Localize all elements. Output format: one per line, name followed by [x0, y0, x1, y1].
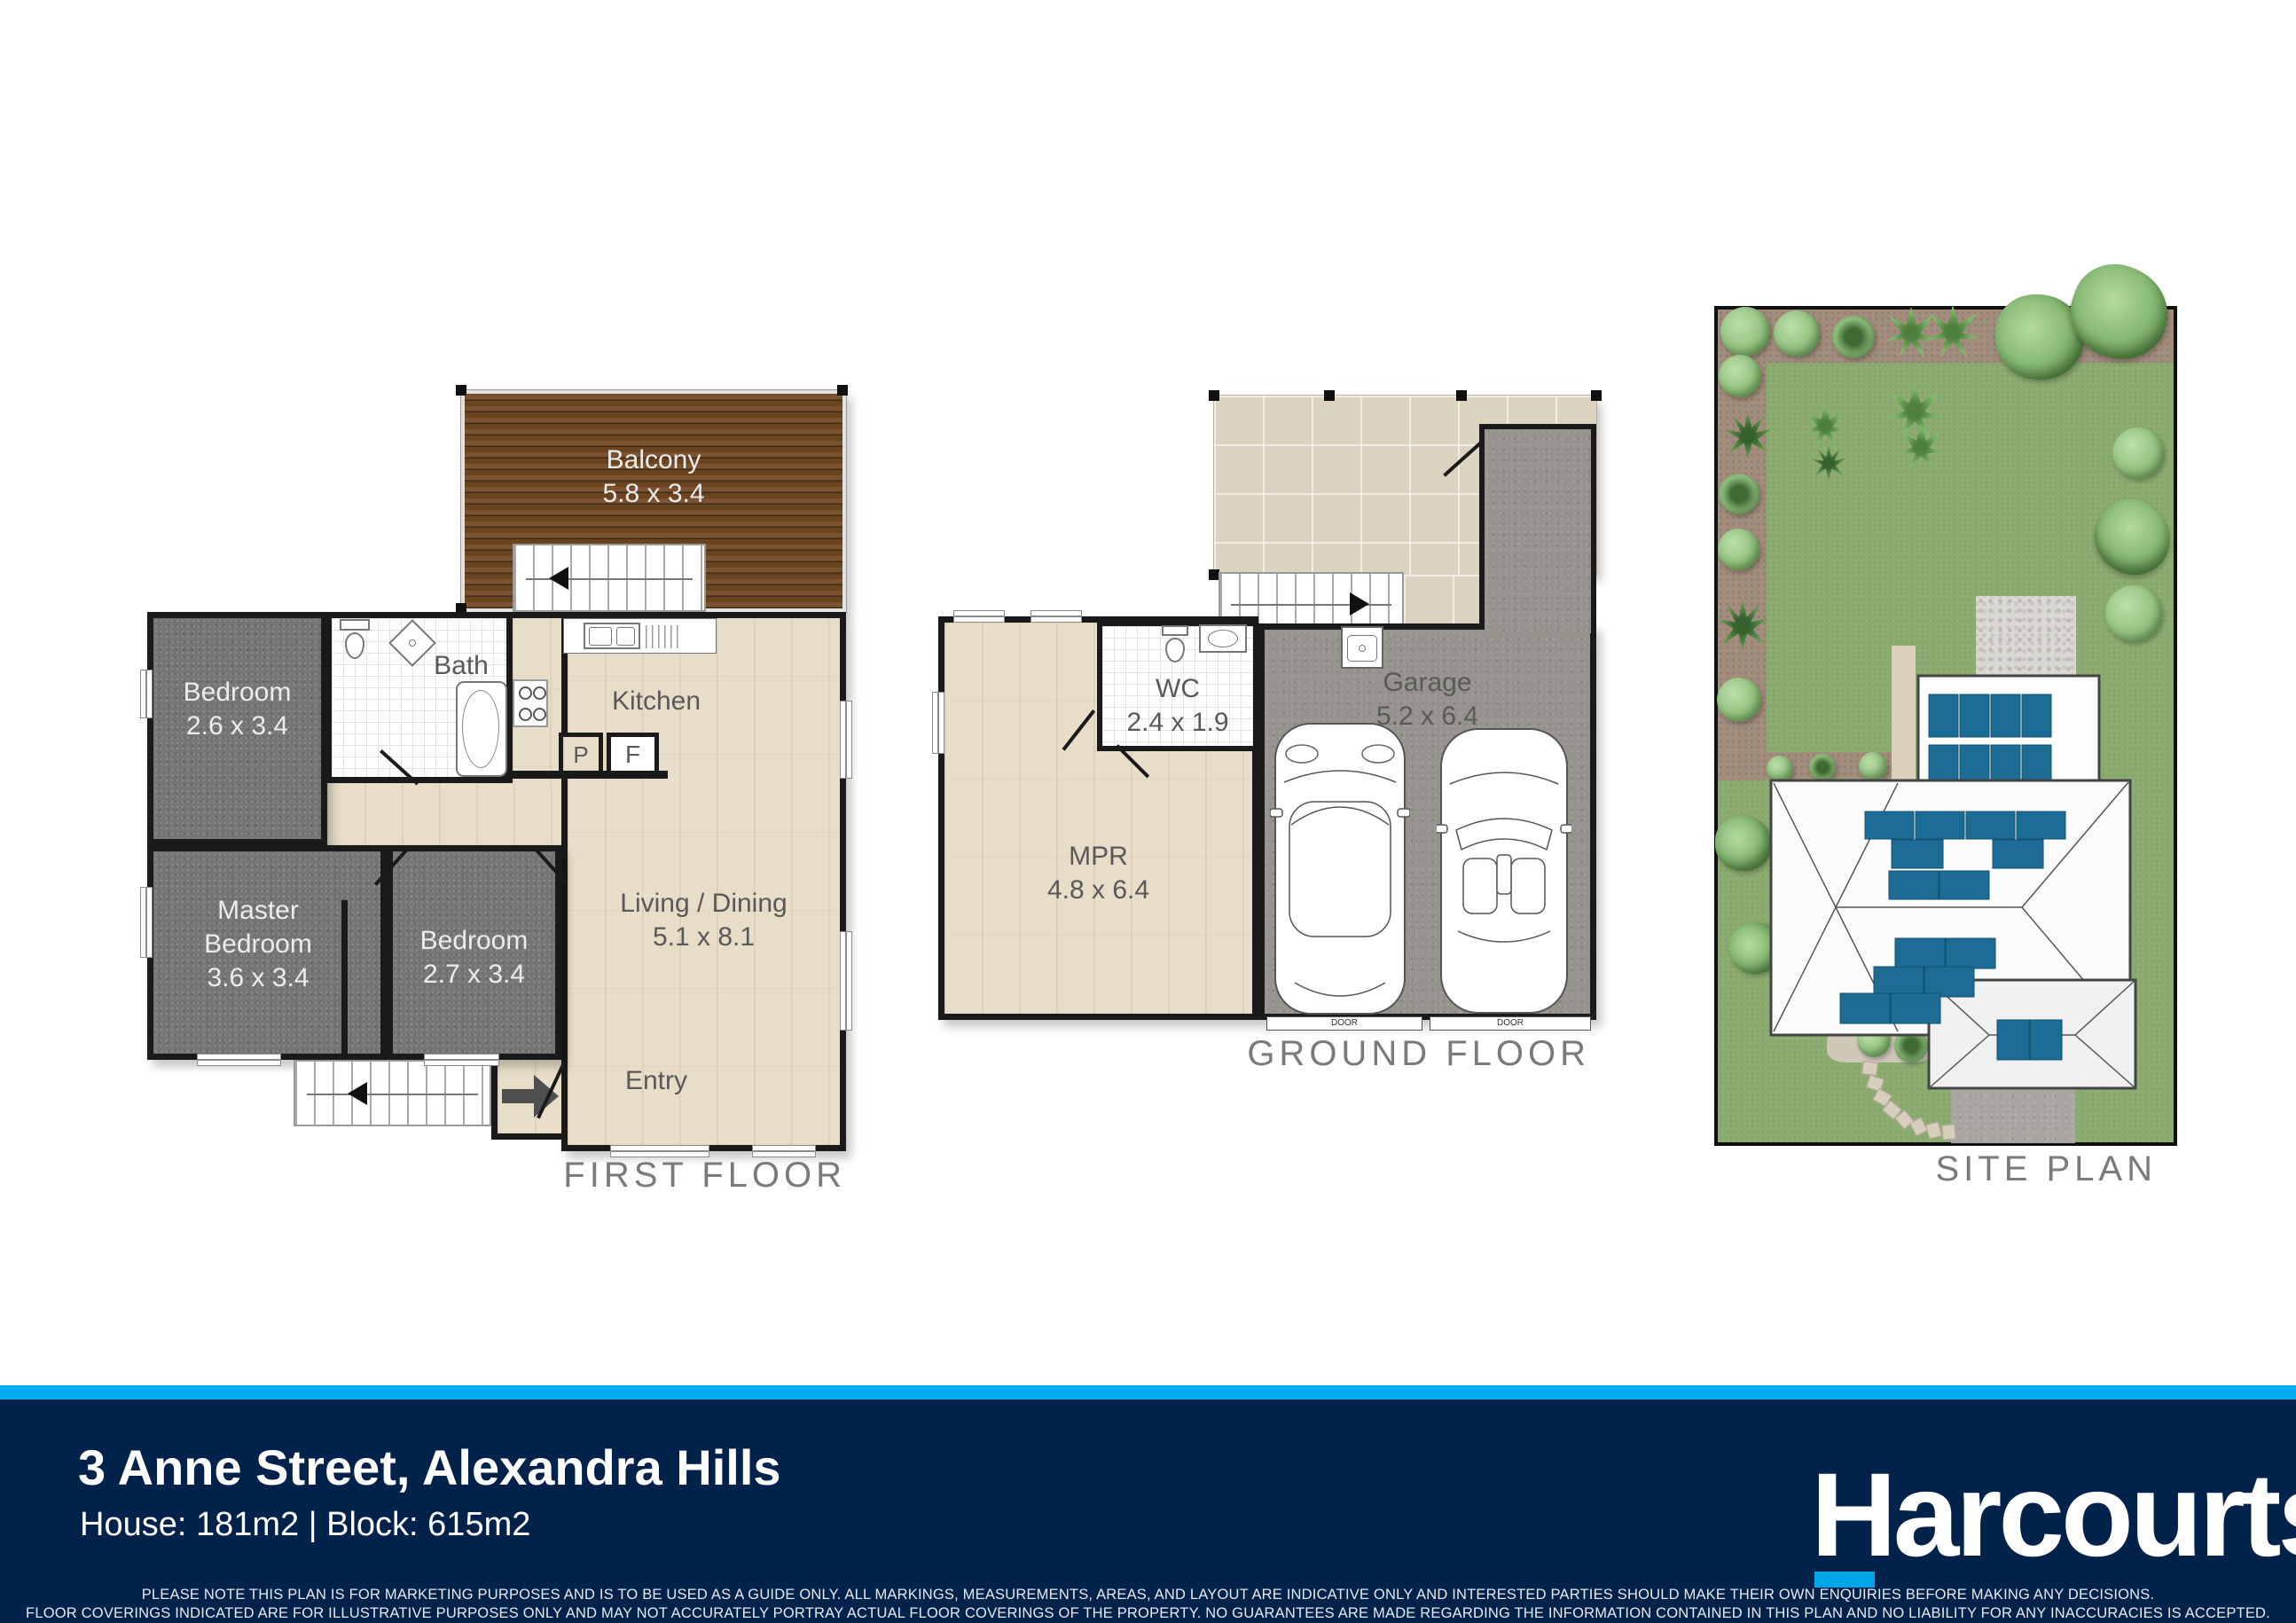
- window: [840, 701, 852, 779]
- patio-fill: [1404, 575, 1479, 625]
- window: [840, 931, 852, 1031]
- stepping-stone: [1941, 1124, 1955, 1140]
- patio-post: [1591, 390, 1602, 401]
- hallway-floor: [327, 783, 561, 845]
- master-label: Master Bedroom 3.6 x 3.4: [147, 894, 369, 995]
- pantry-label: P: [559, 738, 603, 772]
- ground-floor-title: GROUND FLOOR: [1153, 1034, 1590, 1074]
- harcourts-logo: Harcourts: [1811, 1456, 2296, 1575]
- bath-label: Bath: [417, 649, 505, 683]
- balcony-label: Balcony 5.8 x 3.4: [461, 443, 846, 511]
- bedroom1-label: Bedroom 2.6 x 3.4: [147, 676, 327, 743]
- kitchen-wall: [497, 771, 668, 779]
- balcony-post: [837, 385, 848, 396]
- entry-label: Entry: [603, 1064, 709, 1098]
- kitchen-label: Kitchen: [585, 685, 727, 718]
- shrub: [1832, 316, 1875, 358]
- shrub: [2112, 427, 2164, 479]
- drainer: [646, 625, 683, 648]
- balcony-post: [456, 385, 466, 396]
- floorplan-page: Balcony 5.8 x 3.4 Bedroom 2.6 x 3.4 Bath…: [0, 0, 2296, 1623]
- property-address: 3 Anne Street, Alexandra Hills: [78, 1439, 781, 1496]
- kitchen-sink: [584, 623, 640, 649]
- window: [932, 692, 944, 754]
- driveway: [1951, 1086, 2075, 1143]
- garage-arm-join: [1485, 621, 1591, 633]
- site-plan-title: SITE PLAN: [1862, 1149, 2157, 1189]
- tree: [1715, 816, 1772, 871]
- bedroom2-label: Bedroom 2.7 x 3.4: [387, 924, 561, 992]
- car-convertible: [1437, 725, 1571, 1016]
- window: [424, 1054, 499, 1066]
- shrub: [1720, 307, 1770, 357]
- fridge-label: F: [607, 738, 659, 772]
- laundry-tub: [1341, 626, 1383, 669]
- wc-label: WC 2.4 x 1.9: [1097, 672, 1258, 740]
- shrub: [1717, 678, 1761, 722]
- shrub: [1719, 355, 1761, 397]
- patio-post: [1456, 390, 1467, 401]
- window: [197, 1054, 281, 1066]
- window: [140, 670, 153, 718]
- disclaimer-line1: PLEASE NOTE THIS PLAN IS FOR MARKETING P…: [0, 1587, 2296, 1603]
- garage-door-right-label: DOOR: [1430, 1017, 1591, 1030]
- wc-basin: [1199, 624, 1247, 653]
- shrub: [1774, 310, 1820, 357]
- window: [953, 610, 1005, 623]
- first-floor-title: FIRST FLOOR: [497, 1156, 846, 1196]
- property-details: House: 181m2 | Block: 615m2: [80, 1506, 530, 1544]
- wc-toilet-tank: [1162, 625, 1188, 636]
- shrub: [1719, 474, 1759, 514]
- garage-door-left-label: DOOR: [1266, 1017, 1422, 1030]
- disclaimer-line2: FLOOR COVERINGS INDICATED ARE FOR ILLUST…: [0, 1605, 2296, 1622]
- patio-post: [1324, 390, 1335, 401]
- stove: [513, 679, 548, 727]
- patio-post: [1209, 390, 1219, 401]
- stairs-down: [294, 1060, 491, 1126]
- mpr-label: MPR 4.8 x 6.4: [938, 840, 1258, 907]
- toilet-tank: [340, 619, 370, 631]
- car-sedan: [1270, 720, 1410, 1017]
- stairs-up: [513, 544, 706, 612]
- living-label: Living / Dining 5.1 x 8.1: [561, 887, 846, 954]
- accent-stripe: [0, 1385, 2296, 1400]
- garage-entry-arm: [1479, 424, 1596, 630]
- shrub: [2105, 585, 2162, 642]
- bathtub: [456, 681, 507, 777]
- window: [140, 887, 153, 958]
- entry-arrow: [502, 1089, 534, 1103]
- harcourts-logo-underline: [1814, 1572, 1875, 1588]
- house-roof: [1769, 670, 2138, 1094]
- window: [1030, 610, 1082, 623]
- shrub: [1718, 529, 1759, 570]
